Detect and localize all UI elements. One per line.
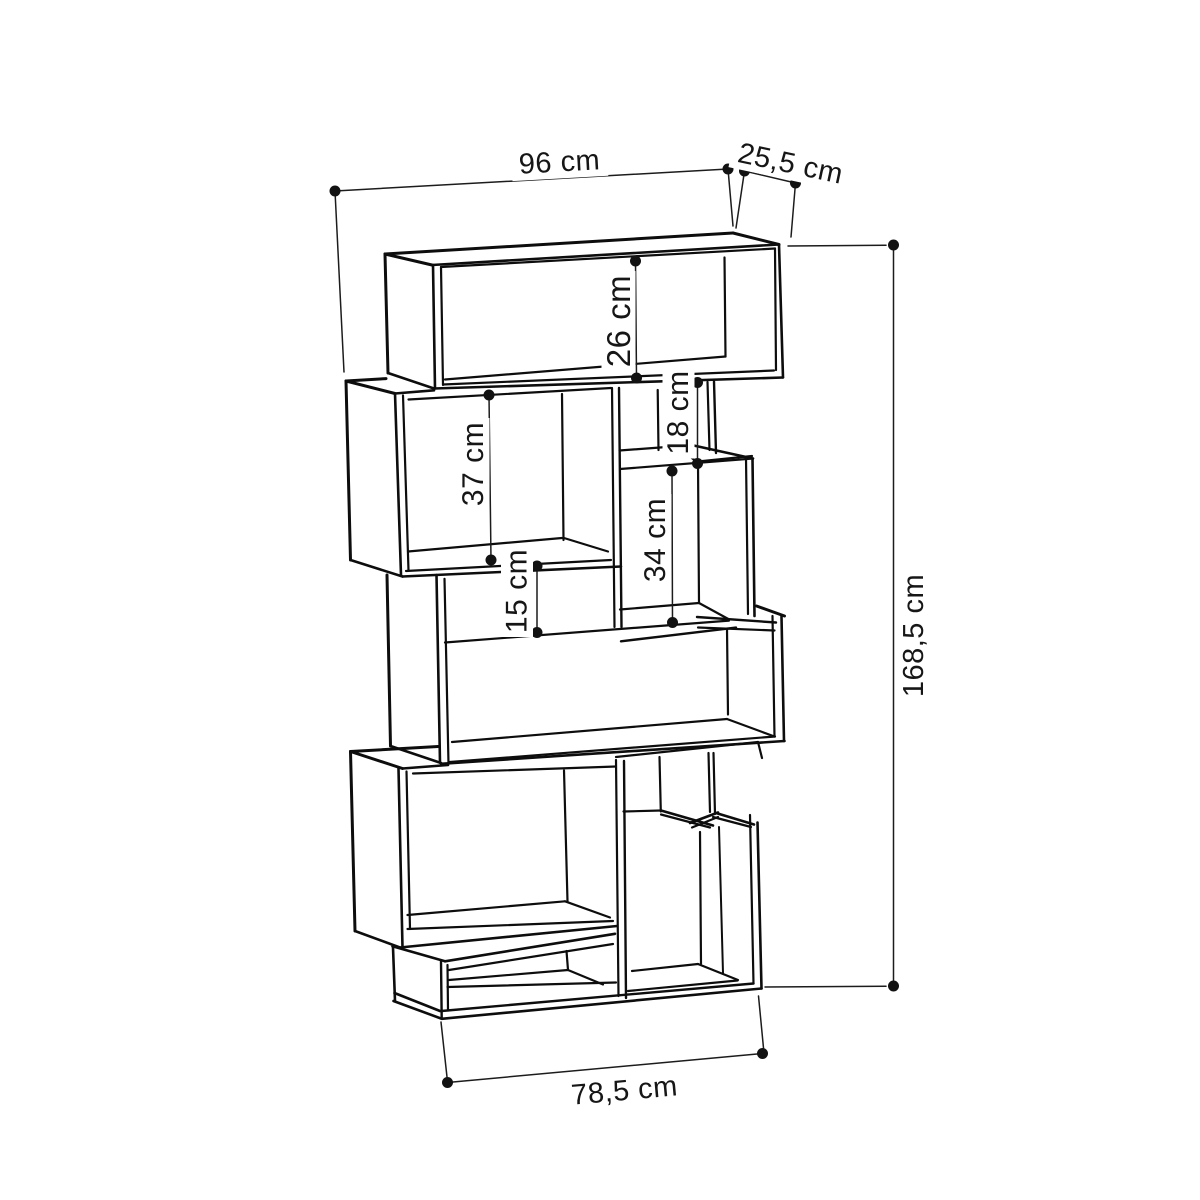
svg-text:96 cm: 96 cm [518, 144, 601, 180]
svg-text:15 cm: 15 cm [501, 549, 534, 633]
svg-text:34 cm: 34 cm [639, 498, 672, 582]
svg-text:18 cm: 18 cm [662, 370, 695, 454]
svg-text:168,5 cm: 168,5 cm [898, 574, 930, 697]
svg-text:37 cm: 37 cm [457, 422, 490, 506]
svg-text:26 cm: 26 cm [600, 275, 637, 367]
